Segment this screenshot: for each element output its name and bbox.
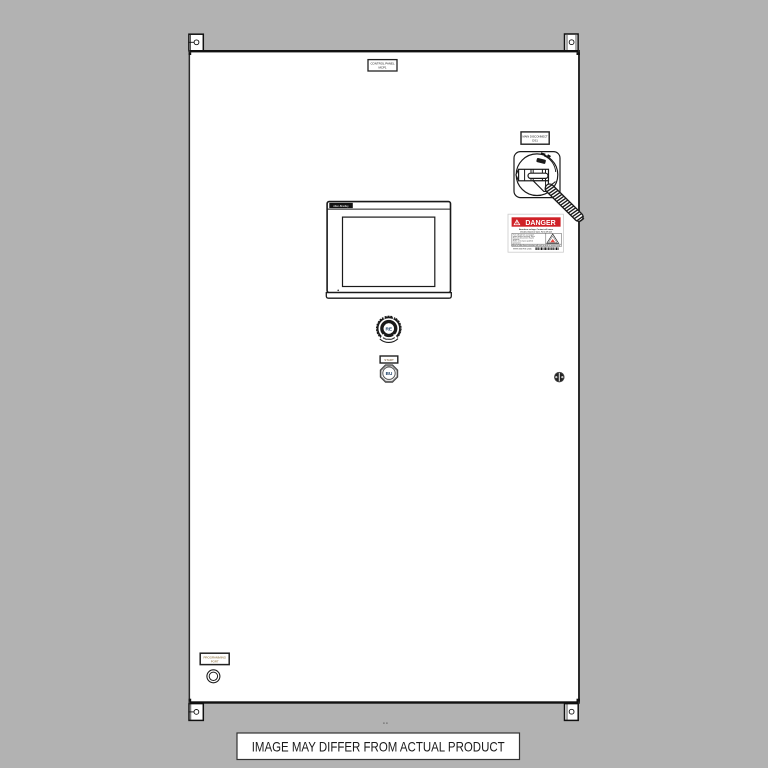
svg-text:Allen-Bradley: Allen-Bradley	[333, 204, 349, 208]
svg-text:RE: RE	[385, 326, 392, 332]
svg-text:99999 0908 P/N 12345: 99999 0908 P/N 12345	[513, 249, 531, 251]
svg-text:START: START	[384, 358, 394, 362]
svg-text:DS1: DS1	[532, 138, 538, 142]
svg-text:DANGER: DANGER	[525, 220, 555, 227]
svg-text:MCP1: MCP1	[378, 66, 386, 70]
svg-text:BU: BU	[386, 371, 393, 376]
svg-text:personnel.: personnel.	[513, 241, 521, 244]
svg-text:PORT: PORT	[211, 659, 219, 663]
svg-text:IMAGE MAY DIFFER FROM ACTUAL P: IMAGE MAY DIFFER FROM ACTUAL PRODUCT	[252, 739, 505, 755]
svg-text:electric shock or burn. Turn o: electric shock or burn. Turn off and	[520, 230, 553, 233]
